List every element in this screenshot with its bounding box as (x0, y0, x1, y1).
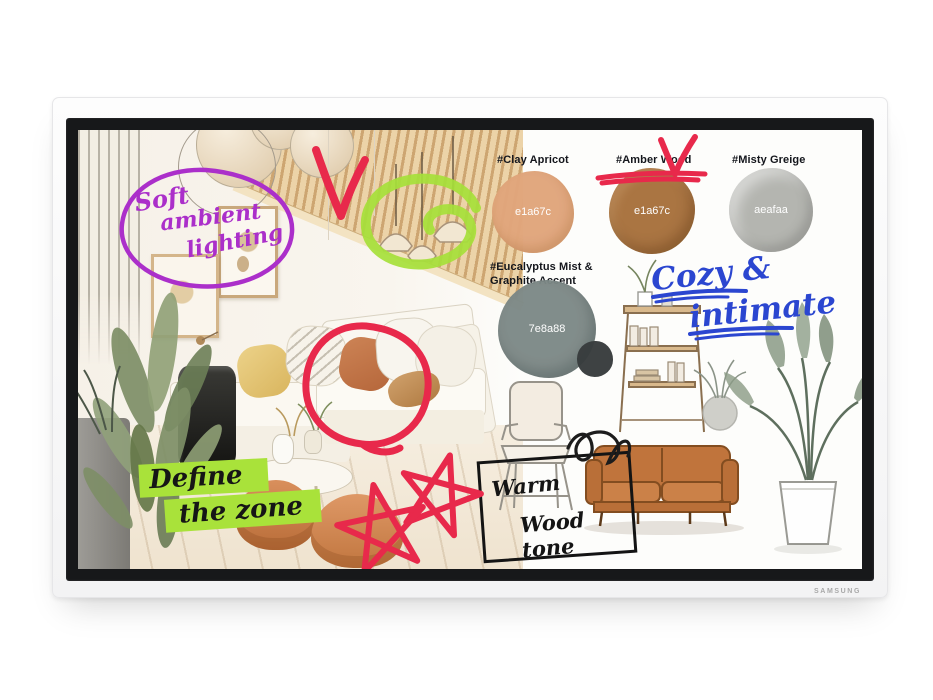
swatch-label-misty-greige: #Misty Greige (732, 154, 805, 166)
screen-bezel: Soft ambient lighting Define the zone #C… (66, 118, 874, 581)
samsung-flip-display: Soft ambient lighting Define the zone #C… (52, 97, 888, 598)
swatch-graphite-accent (577, 341, 613, 377)
swatch-clay-apricot: e1a67c (492, 171, 574, 253)
swatch-label-clay-apricot: #Clay Apricot (497, 154, 569, 166)
swatch-code: e1a67c (634, 205, 670, 217)
highlight-bar: Define (138, 458, 269, 498)
note-soft-ambient-lighting: Soft ambient lighting (133, 167, 286, 269)
swatch-code: 7e8a88 (529, 323, 566, 335)
swatch-code: e1a67c (515, 206, 551, 218)
note-cozy: Cozy & (649, 250, 772, 298)
product-photo: Soft ambient lighting Define the zone #C… (0, 0, 933, 700)
swatch-misty-greige: aeafaa (729, 168, 813, 252)
swatch-label-amber-wood: #Amber Wood (616, 154, 691, 166)
whiteboard-screen[interactable]: Soft ambient lighting Define the zone #C… (78, 130, 862, 569)
swatch-label-line: #Eucalyptus Mist & (490, 260, 593, 274)
note-line: Wood tone (519, 503, 635, 563)
note-warm-wood-tone: Warm Wood tone (477, 451, 638, 563)
swatch-amber-wood: e1a67c (609, 168, 695, 254)
note-line: Warm (490, 470, 561, 502)
note-define-the-zone: Define the zone (138, 455, 321, 532)
swatch-code: aeafaa (754, 204, 788, 216)
highlight-bar: the zone (164, 489, 322, 533)
samsung-logo: SAMSUNG (814, 588, 861, 595)
